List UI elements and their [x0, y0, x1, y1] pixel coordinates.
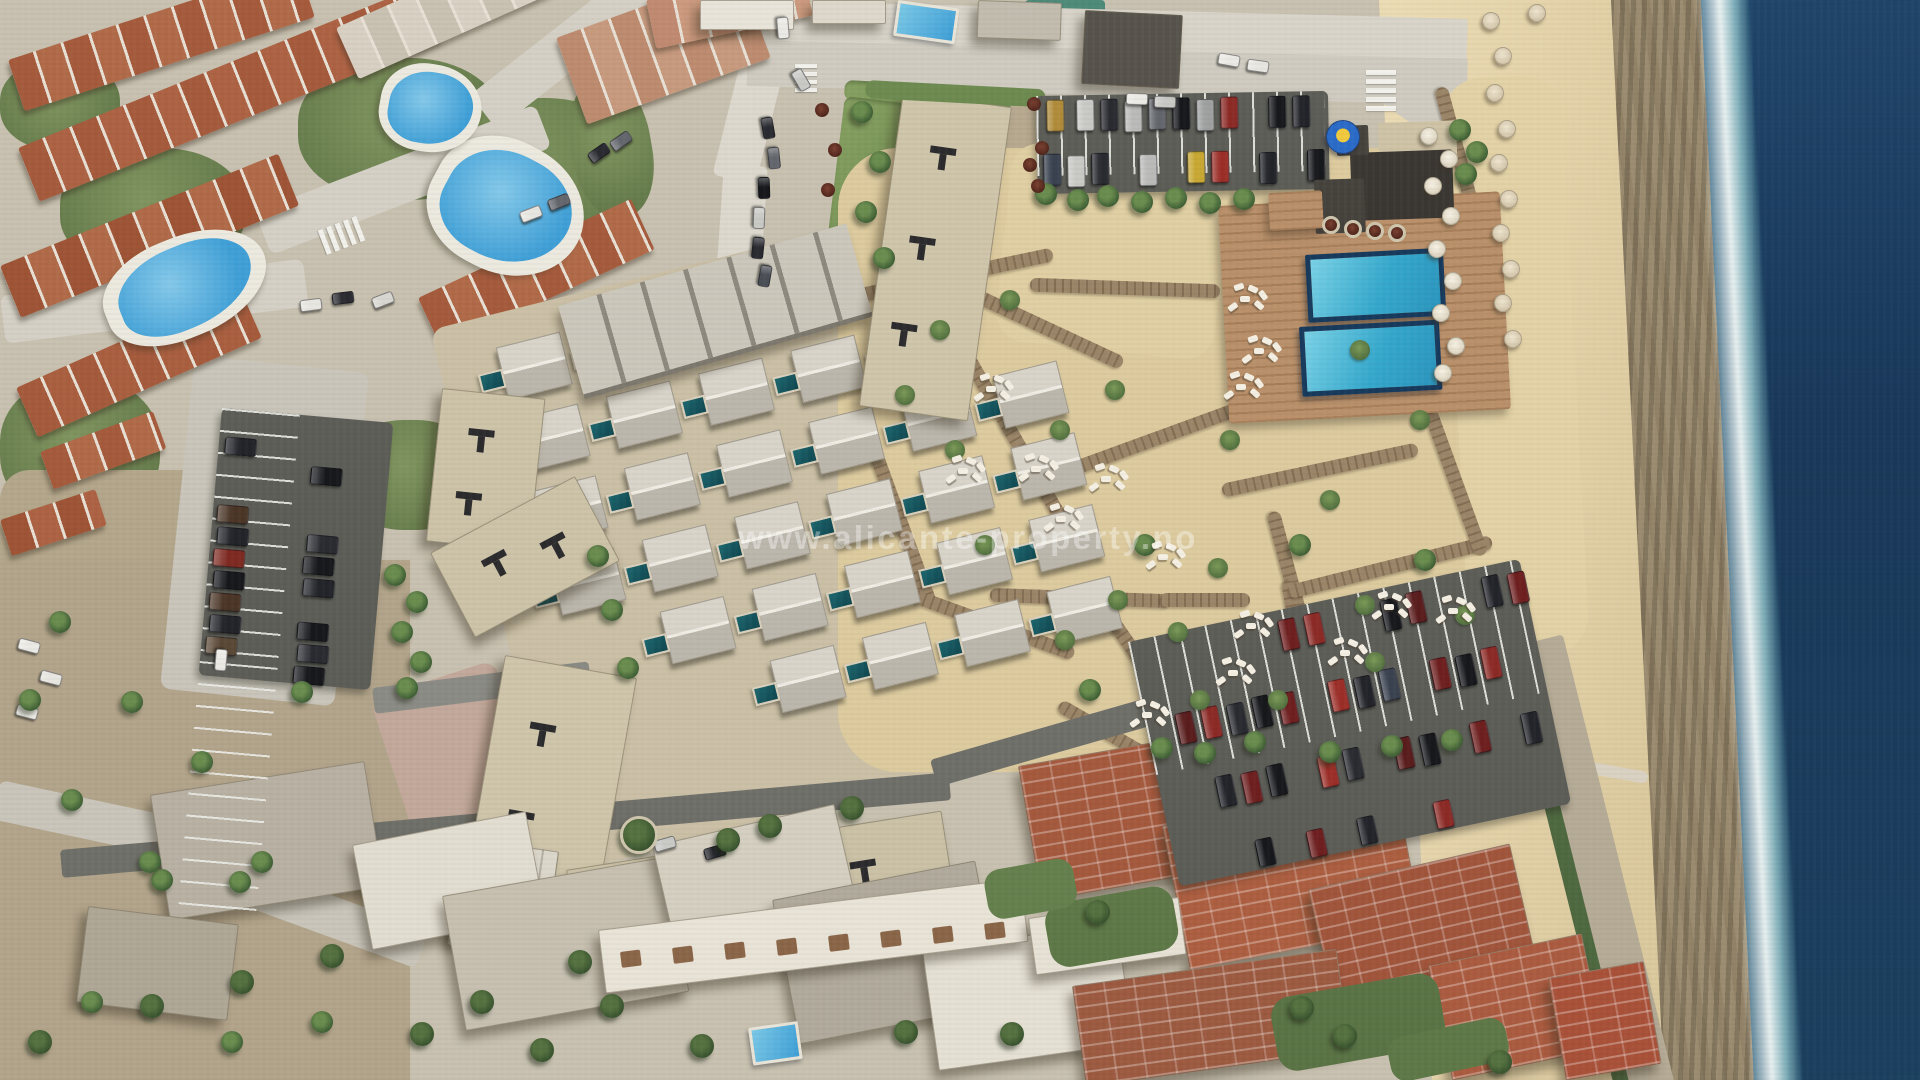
watermark: www.alicante-property.no [738, 519, 1198, 557]
aerial-photo-resort-development: www.alicante-property.no [0, 0, 1920, 1080]
logo-parasol [1326, 120, 1360, 154]
